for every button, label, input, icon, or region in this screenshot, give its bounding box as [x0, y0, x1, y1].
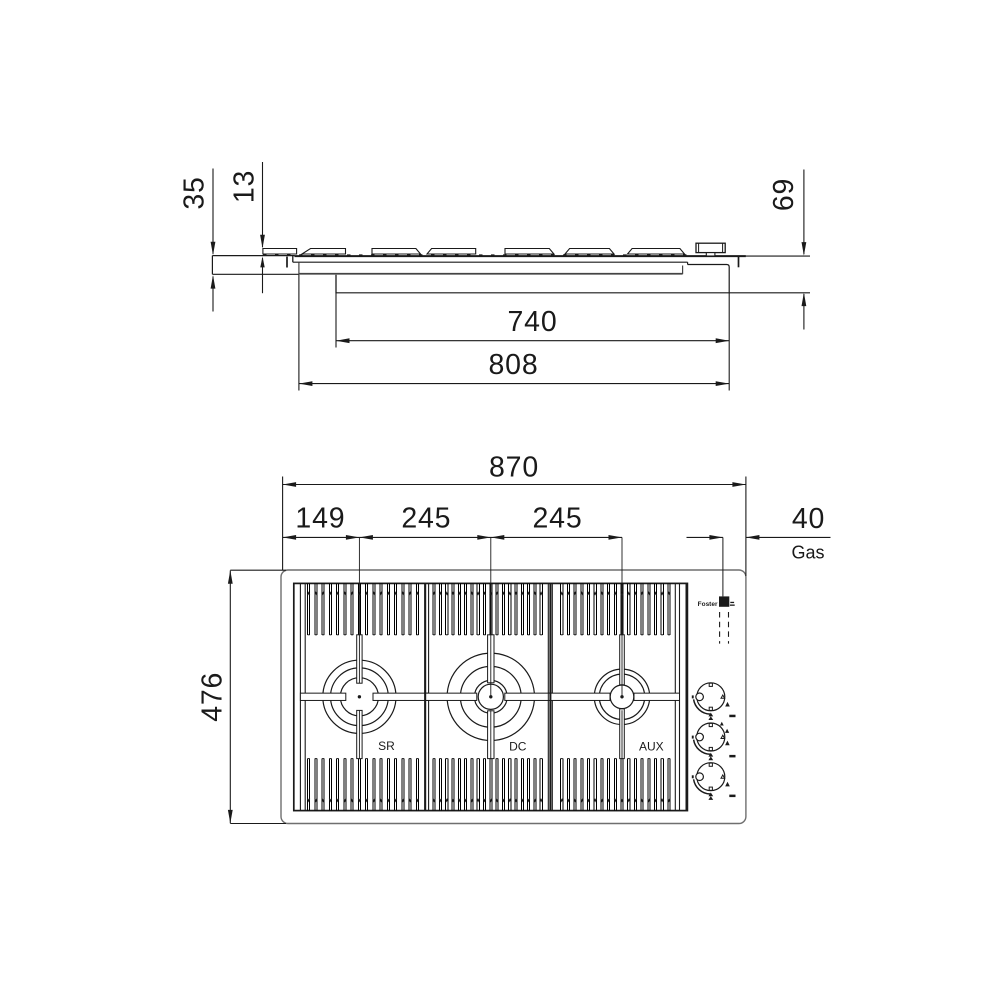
svg-text:149: 149: [295, 503, 345, 535]
svg-text:245: 245: [401, 503, 451, 535]
svg-text:AUX: AUX: [639, 739, 664, 753]
svg-text:740: 740: [508, 306, 558, 338]
svg-text:Foster: Foster: [698, 601, 718, 608]
svg-text:476: 476: [197, 672, 229, 722]
svg-text:870: 870: [489, 452, 539, 484]
svg-text:245: 245: [533, 503, 583, 535]
svg-text:808: 808: [489, 349, 539, 381]
svg-text:DC: DC: [509, 740, 527, 754]
svg-text:SR: SR: [378, 739, 395, 753]
svg-text:Gas: Gas: [791, 543, 824, 563]
svg-text:35: 35: [179, 176, 211, 209]
svg-text:13: 13: [229, 170, 261, 203]
svg-text:40: 40: [792, 503, 825, 535]
svg-text:69: 69: [768, 178, 800, 211]
